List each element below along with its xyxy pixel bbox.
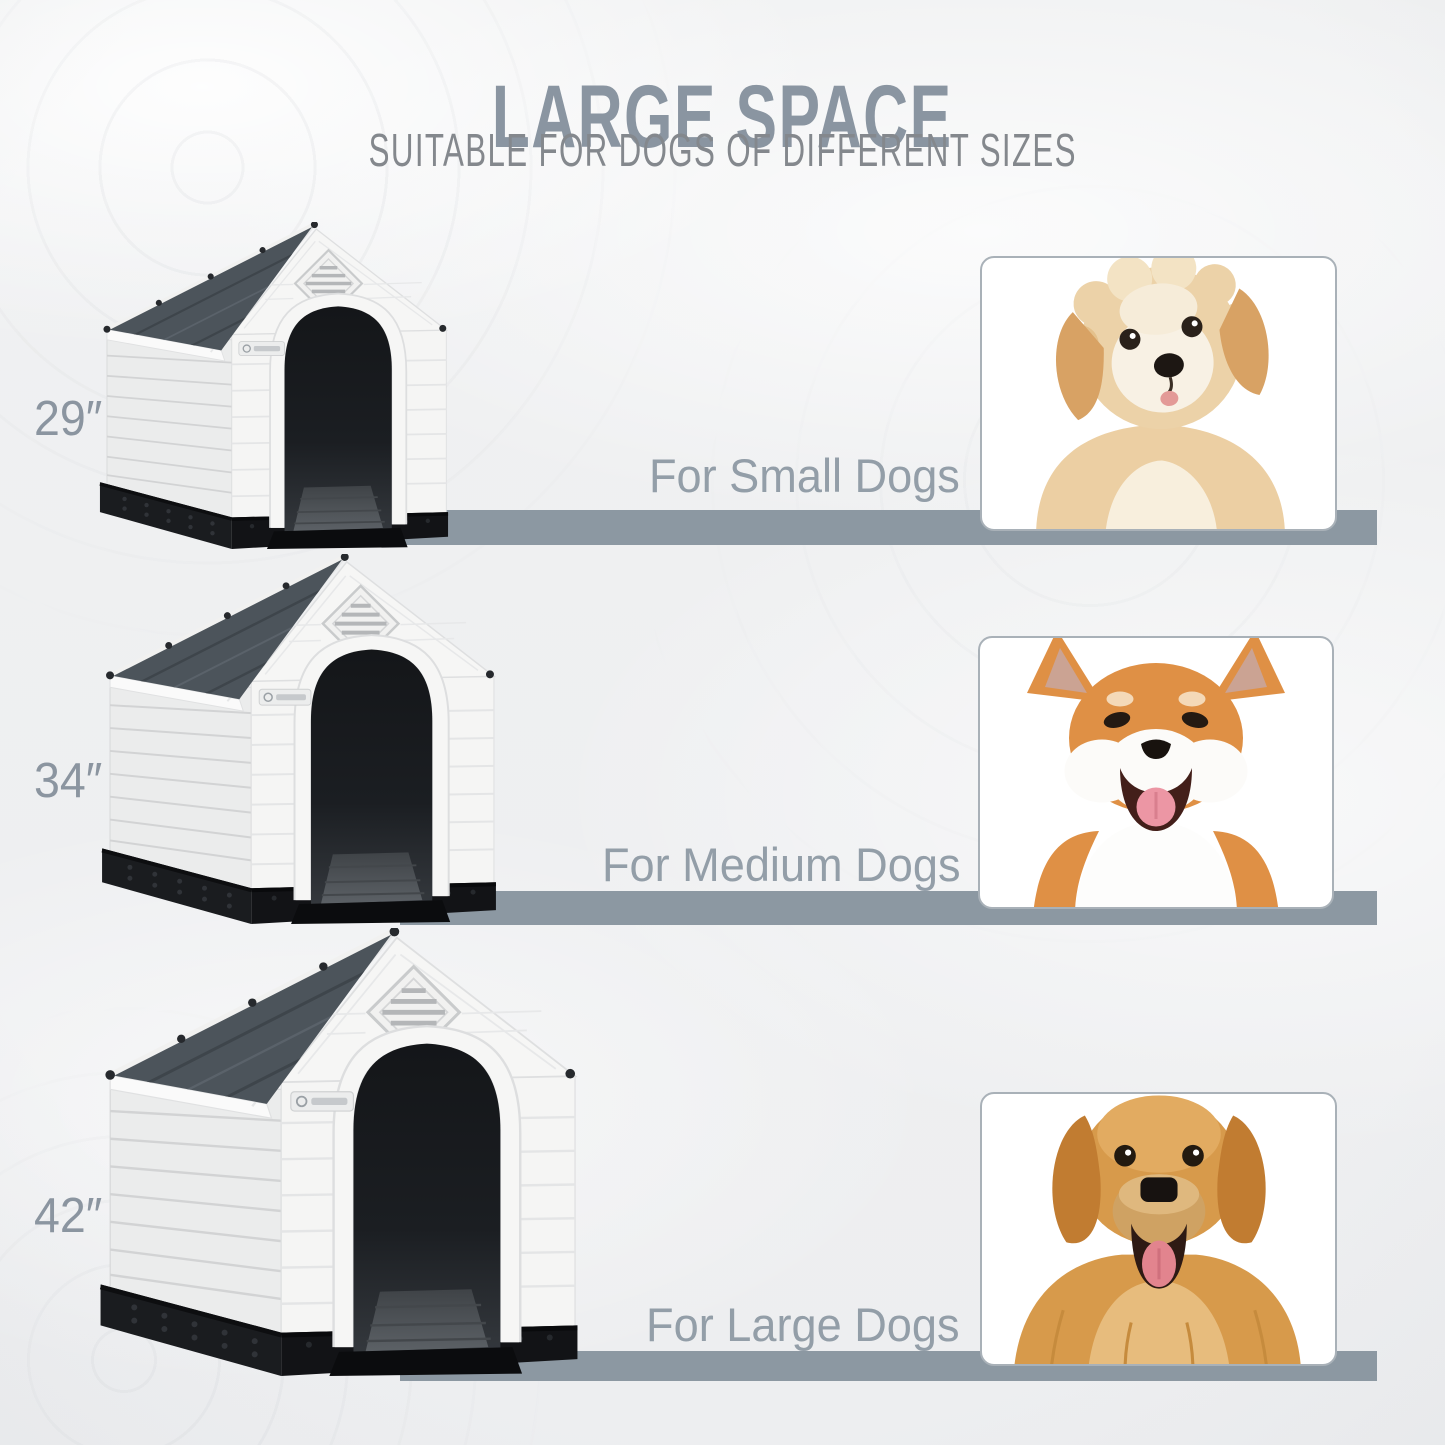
- large-dog-photo: [989, 1092, 1329, 1366]
- page-subtitle: SUITABLE FOR DOGS OF DIFFERENT SIZES: [368, 127, 1076, 173]
- row-caption-medium: For Medium Dogs: [601, 841, 960, 888]
- row-caption-small: For Small Dogs: [649, 452, 960, 499]
- dog-photo-card-large: [980, 1092, 1337, 1366]
- size-label-medium: 34″: [34, 757, 102, 806]
- dog-house-34-inch-image: [100, 554, 498, 924]
- size-label-small: 29″: [34, 395, 102, 444]
- size-label-large: 42″: [34, 1192, 102, 1241]
- row-caption-large: For Large Dogs: [647, 1301, 960, 1348]
- small-dog-photo: [994, 256, 1324, 531]
- medium-dog-photo: [991, 636, 1321, 909]
- product-infographic: LARGE SPACE SUITABLE FOR DOGS OF DIFFERE…: [0, 0, 1445, 1445]
- dog-photo-card-small: [980, 256, 1337, 531]
- dog-photo-card-medium: [978, 636, 1334, 909]
- dog-house-42-inch-image: [98, 928, 580, 1376]
- dog-house-29-inch-image: [98, 222, 450, 549]
